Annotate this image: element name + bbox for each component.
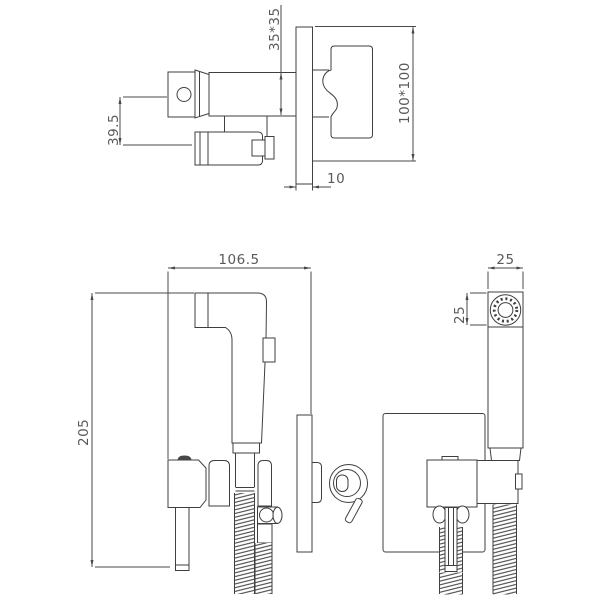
technical-drawing: 35*35 39.5 100*100 10 <box>0 0 600 600</box>
sprayer-hose-side <box>235 493 255 594</box>
dim-set-height: 205 <box>76 419 92 446</box>
set-side-view <box>168 293 368 594</box>
supply-hose-front <box>440 573 463 595</box>
fitting-end <box>273 507 282 523</box>
spout-nozzle <box>252 140 265 156</box>
valve-knob-front <box>442 457 458 461</box>
holder-front <box>475 461 518 504</box>
sprayer-clip <box>263 338 275 362</box>
wall-plate-edge-lower <box>297 415 312 552</box>
dim-plate-thickness: 10 <box>327 171 345 187</box>
sprayer-front <box>488 292 523 448</box>
handle-body-bar <box>209 73 296 117</box>
holder-clip-front <box>516 474 523 489</box>
handle-stem <box>312 463 322 503</box>
valve-body-side <box>168 460 206 508</box>
sprayer-side <box>195 293 267 443</box>
hose-sleeve <box>258 524 273 543</box>
dim-set-depth: 106.5 <box>218 252 259 268</box>
valve-body-front <box>427 460 477 507</box>
valve-side-view <box>168 27 313 184</box>
dim-handle-body-section: 35*35 <box>267 7 283 51</box>
sprayer-cap <box>233 443 260 453</box>
lever-rod-front <box>445 508 457 572</box>
spout-end-plate <box>265 137 274 160</box>
set-front-view <box>383 292 523 595</box>
handle-collar <box>195 70 209 118</box>
sprayer-hose-front <box>493 505 517 595</box>
wall-plate-edge <box>296 27 313 184</box>
lever-rod-side <box>176 508 190 571</box>
hose-nut-right <box>456 506 469 523</box>
holder-arm-rear <box>258 461 272 507</box>
holder-arm-front <box>209 461 230 507</box>
hose-nut-left <box>433 506 446 523</box>
dim-sprayer-head-height: 25 <box>452 306 468 324</box>
dim-handle-offset: 39.5 <box>106 114 122 146</box>
dim-plate-face: 100*100 <box>397 62 413 124</box>
sprayer-neck <box>490 448 521 461</box>
valve-front-view <box>313 46 373 138</box>
drawing-canvas: 35*35 39.5 100*100 10 <box>0 0 600 600</box>
supply-hose-side <box>255 543 272 594</box>
lever-handle-front <box>323 46 373 138</box>
dim-sprayer-width: 25 <box>496 252 514 268</box>
valve-knob <box>178 456 192 461</box>
